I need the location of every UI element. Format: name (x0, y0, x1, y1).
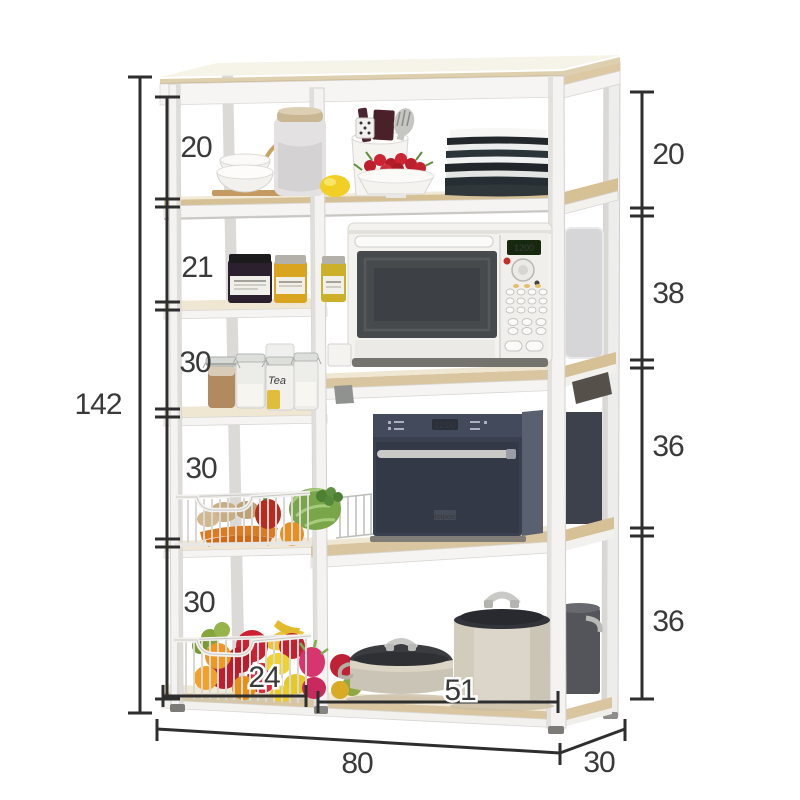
svg-text:20: 20 (652, 138, 684, 171)
svg-text:Hotpoint: Hotpoint (431, 512, 460, 521)
svg-text:51: 51 (444, 674, 476, 707)
svg-text:24: 24 (248, 661, 280, 694)
svg-text:30: 30 (183, 586, 215, 619)
svg-text:36: 36 (652, 605, 684, 638)
svg-text:20: 20 (180, 131, 212, 164)
svg-text:12:00: 12:00 (434, 420, 456, 430)
svg-text:21: 21 (181, 251, 213, 284)
svg-text:38: 38 (652, 277, 684, 310)
svg-text:30: 30 (179, 346, 211, 379)
svg-text:30: 30 (583, 746, 615, 779)
svg-text:1200: 1200 (514, 243, 534, 253)
svg-text:80: 80 (341, 747, 373, 780)
svg-text:30: 30 (185, 452, 217, 485)
svg-text:Tea: Tea (268, 375, 286, 387)
svg-text:36: 36 (652, 430, 684, 463)
svg-text:142: 142 (74, 388, 121, 421)
